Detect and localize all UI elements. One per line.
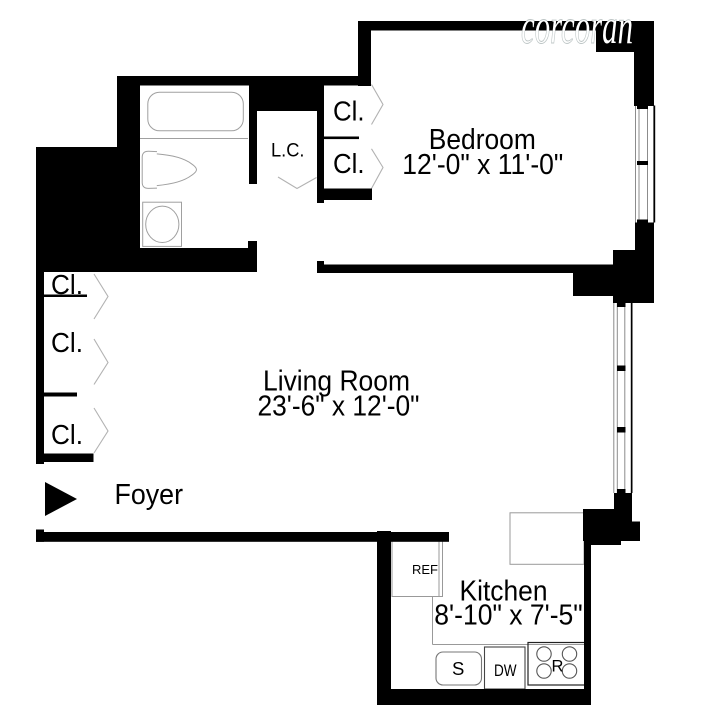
svg-text:Cl.: Cl. <box>333 96 365 127</box>
svg-text:Cl.: Cl. <box>333 148 365 179</box>
svg-text:Foyer: Foyer <box>115 479 184 511</box>
svg-text:12'-0" x 11'-0": 12'-0" x 11'-0" <box>402 149 563 181</box>
svg-text:R: R <box>552 658 564 676</box>
svg-text:23'-6" x 12'-0": 23'-6" x 12'-0" <box>258 390 420 422</box>
svg-text:REF: REF <box>412 563 438 577</box>
svg-text:Cl.: Cl. <box>51 269 83 300</box>
svg-text:Cl.: Cl. <box>51 327 83 358</box>
svg-text:Cl.: Cl. <box>51 419 83 450</box>
svg-text:DW: DW <box>494 661 517 680</box>
svg-text:L.C.: L.C. <box>271 141 305 162</box>
svg-text:8'-10" x 7'-5": 8'-10" x 7'-5" <box>434 599 582 631</box>
svg-text:S: S <box>452 658 464 679</box>
